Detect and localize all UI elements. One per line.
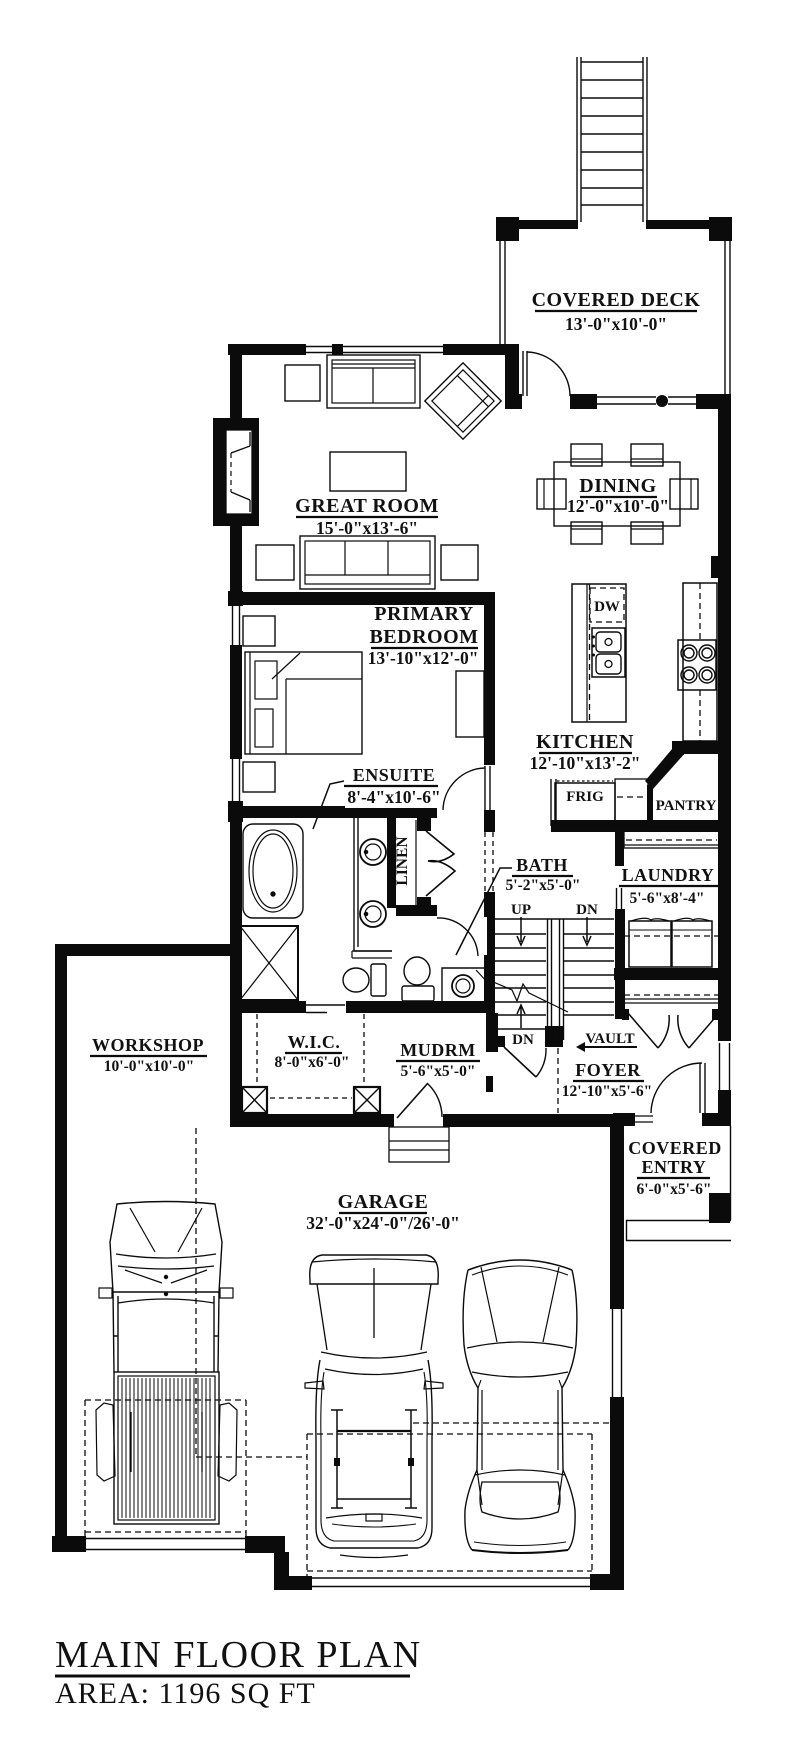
svg-text:COVERED: COVERED bbox=[628, 1138, 722, 1158]
svg-text:12'-10"x5'-6": 12'-10"x5'-6" bbox=[562, 1083, 652, 1100]
svg-text:DW: DW bbox=[594, 599, 620, 615]
svg-text:ENSUITE: ENSUITE bbox=[353, 765, 436, 785]
svg-text:32'-0"x24'-0"/26'-0": 32'-0"x24'-0"/26'-0" bbox=[306, 1213, 460, 1233]
svg-text:5'-2"x5'-0": 5'-2"x5'-0" bbox=[506, 877, 581, 894]
svg-text:BATH: BATH bbox=[516, 855, 568, 875]
svg-text:W.I.C.: W.I.C. bbox=[288, 1032, 341, 1052]
svg-text:FRIG: FRIG bbox=[566, 789, 604, 805]
svg-text:5'-6"x8'-4": 5'-6"x8'-4" bbox=[630, 890, 705, 907]
svg-text:ENTRY: ENTRY bbox=[642, 1157, 707, 1177]
svg-text:12'-10"x13'-2": 12'-10"x13'-2" bbox=[530, 753, 641, 773]
svg-text:MAIN FLOOR PLAN: MAIN FLOOR PLAN bbox=[55, 1634, 422, 1676]
svg-text:PRIMARY: PRIMARY bbox=[374, 603, 474, 625]
svg-text:COVERED DECK: COVERED DECK bbox=[532, 289, 701, 311]
svg-text:BEDROOM: BEDROOM bbox=[369, 626, 478, 648]
svg-text:WORKSHOP: WORKSHOP bbox=[92, 1035, 204, 1055]
svg-text:LAUNDRY: LAUNDRY bbox=[622, 865, 715, 885]
svg-text:8'-4"x10'-6": 8'-4"x10'-6" bbox=[347, 787, 440, 807]
svg-text:6'-0"x5'-6": 6'-0"x5'-6" bbox=[637, 1181, 712, 1198]
svg-text:DINING: DINING bbox=[579, 475, 656, 497]
svg-text:13'-10"x12'-0": 13'-10"x12'-0" bbox=[368, 648, 479, 668]
svg-text:15'-0"x13'-6": 15'-0"x13'-6" bbox=[316, 518, 418, 538]
svg-text:10'-0"x10'-0": 10'-0"x10'-0" bbox=[104, 1058, 194, 1075]
svg-text:MUDRM: MUDRM bbox=[400, 1040, 475, 1060]
svg-text:PANTRY: PANTRY bbox=[656, 798, 717, 814]
svg-text:VAULT: VAULT bbox=[585, 1031, 634, 1047]
svg-text:DN: DN bbox=[576, 902, 598, 918]
svg-text:5'-6"x5'-0": 5'-6"x5'-0" bbox=[401, 1063, 476, 1080]
svg-text:GARAGE: GARAGE bbox=[338, 1191, 429, 1213]
svg-text:DN: DN bbox=[512, 1032, 534, 1048]
svg-text:FOYER: FOYER bbox=[575, 1060, 641, 1080]
svg-text:LINEN: LINEN bbox=[394, 836, 411, 885]
svg-text:AREA: 1196 SQ FT: AREA: 1196 SQ FT bbox=[55, 1677, 316, 1710]
svg-text:12'-0"x10'-0": 12'-0"x10'-0" bbox=[567, 496, 669, 516]
svg-text:13'-0"x10'-0": 13'-0"x10'-0" bbox=[565, 314, 667, 334]
svg-text:8'-0"x6'-0": 8'-0"x6'-0" bbox=[275, 1054, 350, 1071]
svg-text:UP: UP bbox=[511, 902, 531, 918]
svg-text:KITCHEN: KITCHEN bbox=[536, 731, 634, 753]
svg-text:GREAT ROOM: GREAT ROOM bbox=[295, 495, 439, 517]
